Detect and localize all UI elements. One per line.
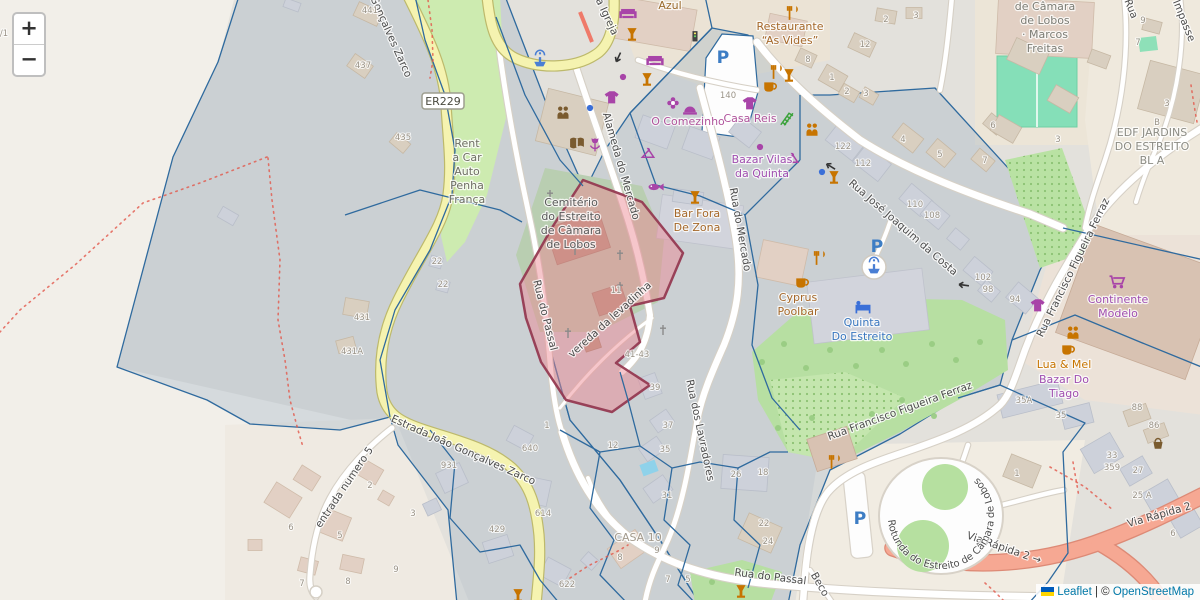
dot-icon — [620, 74, 626, 80]
poi-label: Tiago — [1048, 387, 1079, 400]
leaflet-link[interactable]: Leaflet — [1057, 586, 1092, 598]
cemetery-label: de Lobos — [546, 238, 596, 251]
poi-label: de Câmara — [1015, 0, 1075, 13]
poi-label: Freitas — [1027, 42, 1064, 55]
poi-label: da Quinta — [735, 167, 789, 180]
poi-label: Do Estreito — [832, 330, 893, 343]
house-number: 2 — [367, 481, 372, 491]
house-number: 86 — [1149, 421, 1160, 431]
house-number: 5 — [937, 150, 942, 160]
poi-label: França — [449, 193, 486, 206]
house-number: 3 — [1055, 135, 1060, 145]
attribution-bar: Leaflet | © OpenStreetMap — [1036, 584, 1200, 600]
cemetery-label: Cemitério — [544, 196, 598, 209]
poi-label: EDF JARDINS — [1117, 126, 1187, 139]
house-number: 37 — [663, 421, 674, 431]
house-number: B — [1154, 118, 1160, 128]
house-number: 3 — [410, 509, 415, 519]
parking-icon: P — [871, 237, 884, 257]
map-svg: Cemitériodo Estreitode Câmarade LobosPPP… — [0, 0, 1200, 600]
house-number: 9 — [654, 546, 659, 556]
road-end — [310, 586, 322, 598]
house-number: 33 — [1107, 451, 1118, 461]
parking-icon: P — [717, 48, 730, 68]
house-number: 6 — [288, 523, 293, 533]
poi-label: Lua & Mel — [1037, 358, 1092, 371]
house-number: 431A — [341, 347, 363, 357]
house-number: /1 — [0, 29, 8, 39]
house-number: 7 — [299, 579, 304, 589]
house-number: 112 — [855, 159, 871, 169]
poi-label: Rent — [454, 137, 480, 150]
poi-label: Restaurante — [757, 20, 824, 33]
route-shield-label: ER229 — [425, 95, 461, 108]
house-number: 2 — [883, 15, 888, 25]
house-number: 41-43 — [625, 350, 650, 360]
house-number: 3 — [913, 11, 918, 21]
poi-label: a Car — [452, 151, 482, 164]
dot-icon — [819, 169, 825, 175]
cemetery-label: de Câmara — [541, 224, 601, 237]
zoom-control: + − — [12, 12, 46, 77]
house-number: 94 — [1010, 295, 1021, 305]
poi-label: Modelo — [1098, 307, 1138, 320]
attribution-separator: | © — [1092, 586, 1113, 598]
house-number: 98 — [983, 285, 994, 295]
house-number: 441 — [362, 6, 378, 16]
poi-label: · Marcos — [1022, 28, 1068, 41]
house-number: 2 — [844, 87, 849, 97]
house-number: 102 — [975, 273, 991, 283]
house-number: 7 — [1135, 38, 1140, 48]
zoom-out-button[interactable]: − — [14, 45, 44, 75]
house-number: 122 — [835, 142, 851, 152]
house-number: 18 — [758, 468, 769, 478]
house-number: 25 A — [1132, 491, 1152, 501]
house-number: 108 — [924, 211, 940, 221]
house-number: 6 — [990, 121, 995, 131]
dot-icon — [757, 144, 763, 150]
house-number: 11 — [611, 286, 622, 296]
house-number: 31 — [662, 491, 673, 501]
house-number: 1 — [829, 73, 834, 83]
house-number: 622 — [559, 580, 575, 590]
map-canvas[interactable]: Cemitériodo Estreitode Câmarade LobosPPP… — [0, 0, 1200, 600]
tree-icon — [931, 413, 937, 419]
parking-icon: P — [854, 509, 867, 529]
tree-icon — [827, 347, 833, 353]
house-number: 9 — [393, 565, 398, 575]
poi-label: Continente — [1088, 293, 1149, 306]
poi-label: Auto — [454, 165, 480, 178]
house-number: 12 — [860, 40, 871, 50]
tree-icon — [781, 341, 787, 347]
poi-label: Penha — [450, 179, 484, 192]
dot-icon — [587, 105, 593, 111]
house-number: 27 — [1133, 466, 1144, 476]
house-number: 110 — [907, 200, 923, 210]
house-number: 8 — [345, 577, 350, 587]
tree-icon — [803, 365, 809, 371]
house-number: 5 — [337, 531, 342, 541]
poi-label: Bazar Do — [1039, 373, 1089, 386]
house-number: 39 — [650, 383, 661, 393]
green-area — [1138, 36, 1158, 52]
poi-label: Quinta — [844, 316, 881, 329]
poi-label: Azul — [658, 0, 681, 12]
poi-label: “As Vides” — [762, 34, 819, 47]
poi-label: O Comezinho — [651, 115, 725, 128]
poi-label: Bazar Vilas — [732, 153, 793, 166]
house-number: 140 — [720, 91, 736, 101]
tree-icon — [929, 341, 935, 347]
house-number: 8 — [805, 55, 810, 65]
house-number: 22 — [432, 257, 443, 267]
zoom-in-button[interactable]: + — [14, 14, 44, 45]
tree-icon — [775, 425, 781, 431]
house-number: 9 — [1140, 16, 1145, 26]
house-number: 7 — [665, 575, 670, 585]
osm-link[interactable]: OpenStreetMap — [1113, 586, 1194, 598]
house-number: 1 — [544, 421, 549, 431]
house-number: 22 — [759, 519, 770, 529]
poi-label: De Zona — [674, 221, 721, 234]
tree-icon — [809, 415, 815, 421]
house-number: 429 — [489, 525, 505, 535]
house-number: 8 — [617, 553, 622, 563]
poi-label: Bar Fora — [674, 207, 720, 220]
poi-label: de Lobos — [1020, 14, 1070, 27]
house-number: 12 — [608, 441, 619, 451]
roundabout-island — [922, 464, 968, 510]
house-number: 435 — [395, 133, 411, 143]
house-number: 640 — [522, 444, 538, 454]
poi-label: CASA 10 — [614, 531, 661, 544]
tree-icon — [709, 579, 715, 585]
cemetery-label: do Estreito — [541, 210, 601, 223]
house-number: 88 — [1132, 403, 1143, 413]
svg-text:P: P — [871, 237, 884, 257]
house-number: 24 — [763, 537, 774, 547]
poi-label: BL A — [1140, 154, 1165, 167]
poi-label: DO ESTREITO — [1115, 140, 1190, 153]
house-number: 35A — [1016, 396, 1033, 406]
house-number: 7 — [982, 156, 987, 166]
tree-icon — [853, 363, 859, 369]
ukraine-flag-icon — [1041, 587, 1054, 596]
house-number: 3 — [1164, 99, 1169, 109]
house-number: 26 — [731, 470, 742, 480]
tree-icon — [977, 339, 983, 345]
house-number: 1 — [1014, 469, 1019, 479]
house-number: 614 — [535, 509, 551, 519]
house-number: 4 — [900, 135, 905, 145]
house-number: 22 — [438, 280, 449, 290]
poi-label: Casa Reis — [723, 112, 776, 125]
svg-text:P: P — [717, 48, 730, 68]
tree-icon — [899, 397, 905, 403]
house-number: 431 — [354, 313, 370, 323]
poi-label: Poolbar — [777, 305, 818, 318]
house-number: 3 — [863, 89, 868, 99]
house-number: 359 — [1104, 463, 1120, 473]
tree-icon — [903, 361, 909, 367]
house-number: 35 — [1056, 411, 1067, 421]
tree-icon — [879, 347, 885, 353]
house-number: 6 — [1170, 529, 1175, 539]
building — [248, 540, 262, 551]
house-number: 437 — [355, 61, 371, 71]
svg-text:P: P — [854, 509, 867, 529]
tlight-icon — [692, 31, 697, 41]
tree-icon — [953, 357, 959, 363]
house-number: 5 — [685, 575, 690, 585]
house-number: 35 — [660, 445, 671, 455]
poi-label: Cyprus — [779, 291, 818, 304]
house-number: 931 — [441, 461, 457, 471]
